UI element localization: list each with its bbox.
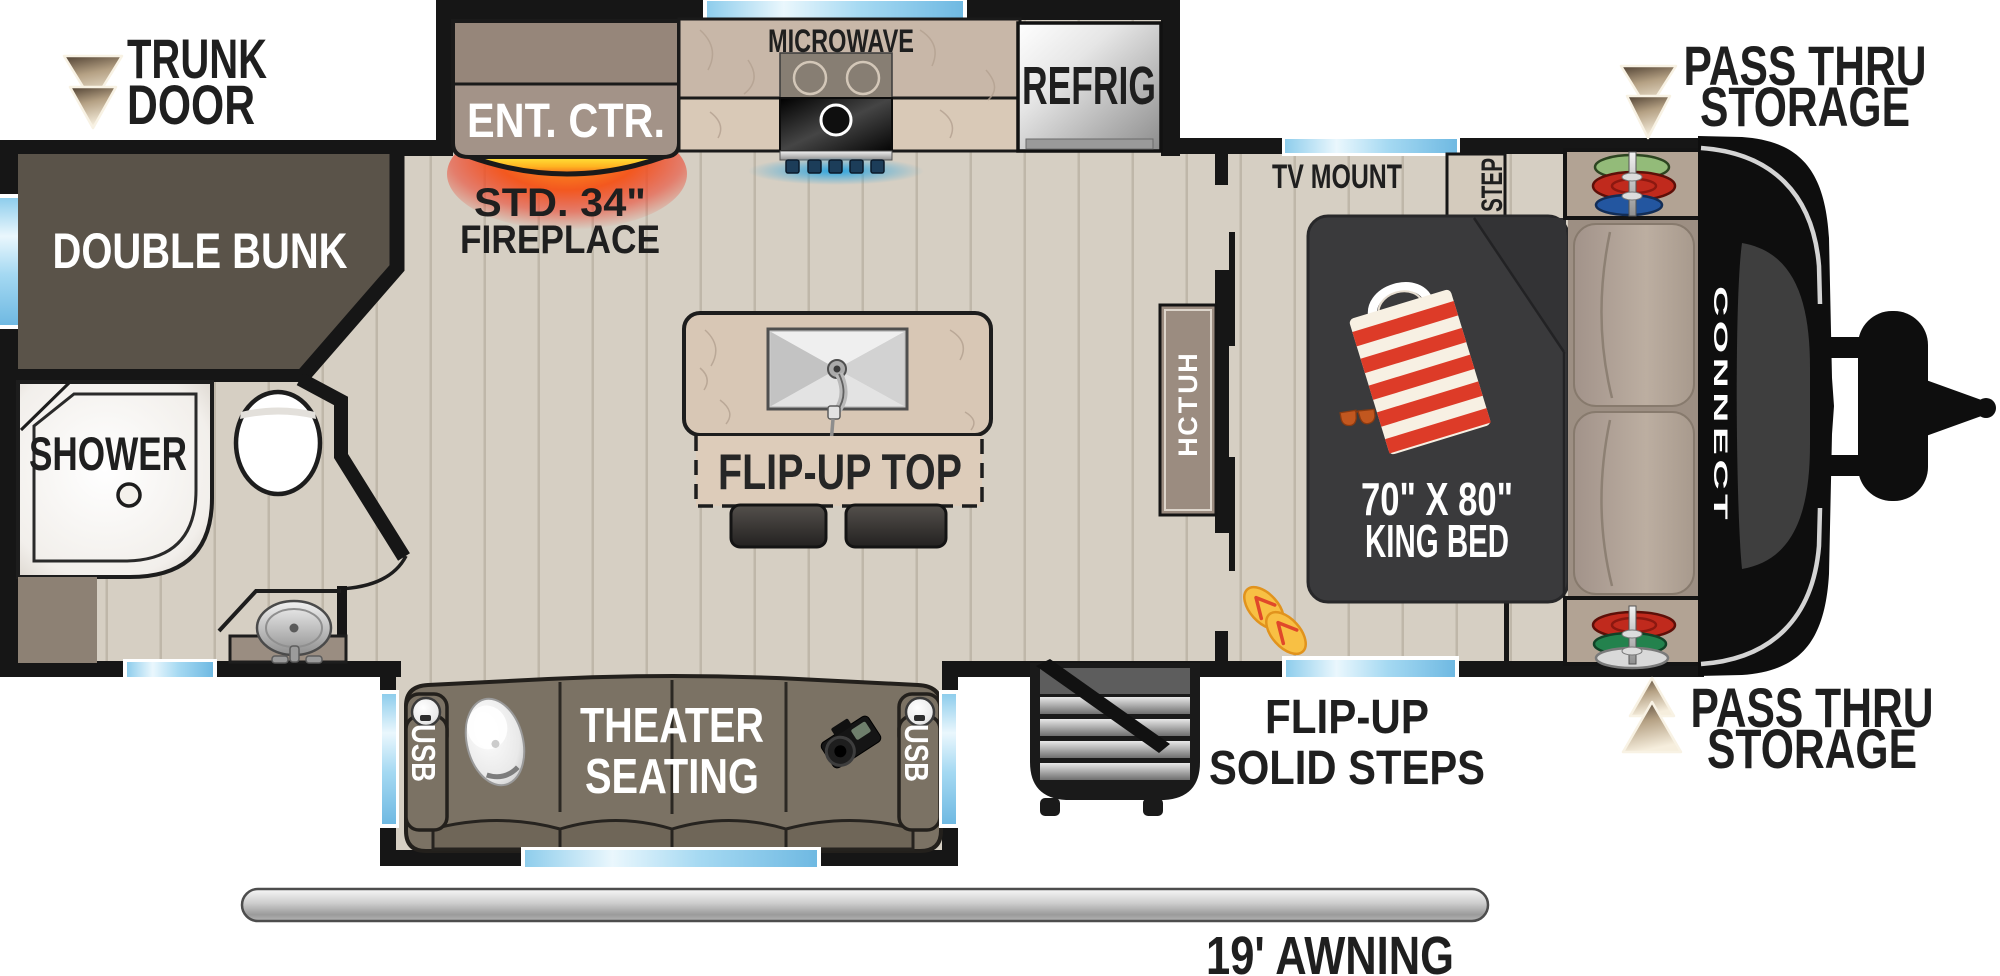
- svg-text:U: U: [1173, 374, 1203, 394]
- svg-text:TV MOUNT: TV MOUNT: [1272, 158, 1402, 196]
- svg-text:FLIP-UP TOP: FLIP-UP TOP: [718, 444, 962, 500]
- svg-text:STORAGE: STORAGE: [1707, 717, 1917, 780]
- svg-text:SEATING: SEATING: [585, 750, 759, 804]
- svg-text:STEP: STEP: [1476, 158, 1509, 212]
- svg-text:USB: USB: [405, 724, 442, 782]
- svg-text:USB: USB: [898, 724, 935, 782]
- svg-text:REFRIG: REFRIG: [1022, 56, 1156, 116]
- svg-text:STORAGE: STORAGE: [1700, 75, 1910, 138]
- svg-text:C: C: [1173, 416, 1203, 436]
- svg-text:H: H: [1173, 437, 1203, 457]
- svg-text:H: H: [1173, 353, 1203, 373]
- svg-text:DOUBLE BUNK: DOUBLE BUNK: [53, 223, 348, 279]
- svg-text:DOOR: DOOR: [127, 73, 255, 136]
- svg-text:THEATER: THEATER: [580, 699, 764, 753]
- svg-text:T: T: [1173, 396, 1203, 413]
- svg-text:19' AWNING: 19' AWNING: [1206, 926, 1454, 976]
- svg-text:CONNECT: CONNECT: [1709, 286, 1730, 524]
- svg-text:FLIP-UP: FLIP-UP: [1265, 691, 1429, 744]
- svg-text:SOLID STEPS: SOLID STEPS: [1209, 742, 1485, 795]
- svg-text:ENT. CTR.: ENT. CTR.: [467, 95, 665, 148]
- svg-text:SHOWER: SHOWER: [29, 427, 187, 480]
- svg-text:KING BED: KING BED: [1365, 515, 1509, 567]
- svg-text:FIREPLACE: FIREPLACE: [460, 218, 660, 262]
